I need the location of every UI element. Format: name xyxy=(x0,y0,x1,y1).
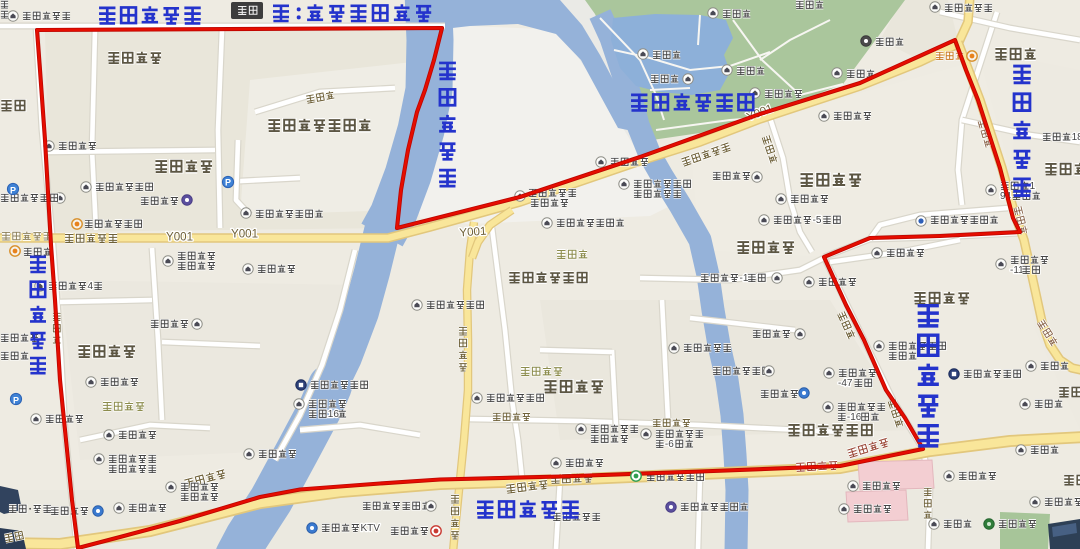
svg-text:189: 189 xyxy=(1072,132,1080,143)
svg-text:-11: -11 xyxy=(1010,265,1024,276)
svg-text:P: P xyxy=(225,178,231,188)
svg-text:16: 16 xyxy=(328,409,340,420)
svg-text:Y001: Y001 xyxy=(231,228,258,241)
svg-text:Y001: Y001 xyxy=(459,225,487,240)
svg-text:KTV: KTV xyxy=(361,523,381,534)
svg-text:-16: -16 xyxy=(847,412,862,423)
svg-text:P: P xyxy=(10,186,16,196)
svg-text:Y001: Y001 xyxy=(166,231,193,244)
svg-text:P: P xyxy=(13,396,19,406)
svg-text:-6: -6 xyxy=(665,439,674,450)
svg-text:-5: -5 xyxy=(813,215,822,226)
svg-text:-1: -1 xyxy=(740,273,749,284)
svg-text:4: 4 xyxy=(88,281,94,292)
svg-text:-47: -47 xyxy=(838,378,853,389)
